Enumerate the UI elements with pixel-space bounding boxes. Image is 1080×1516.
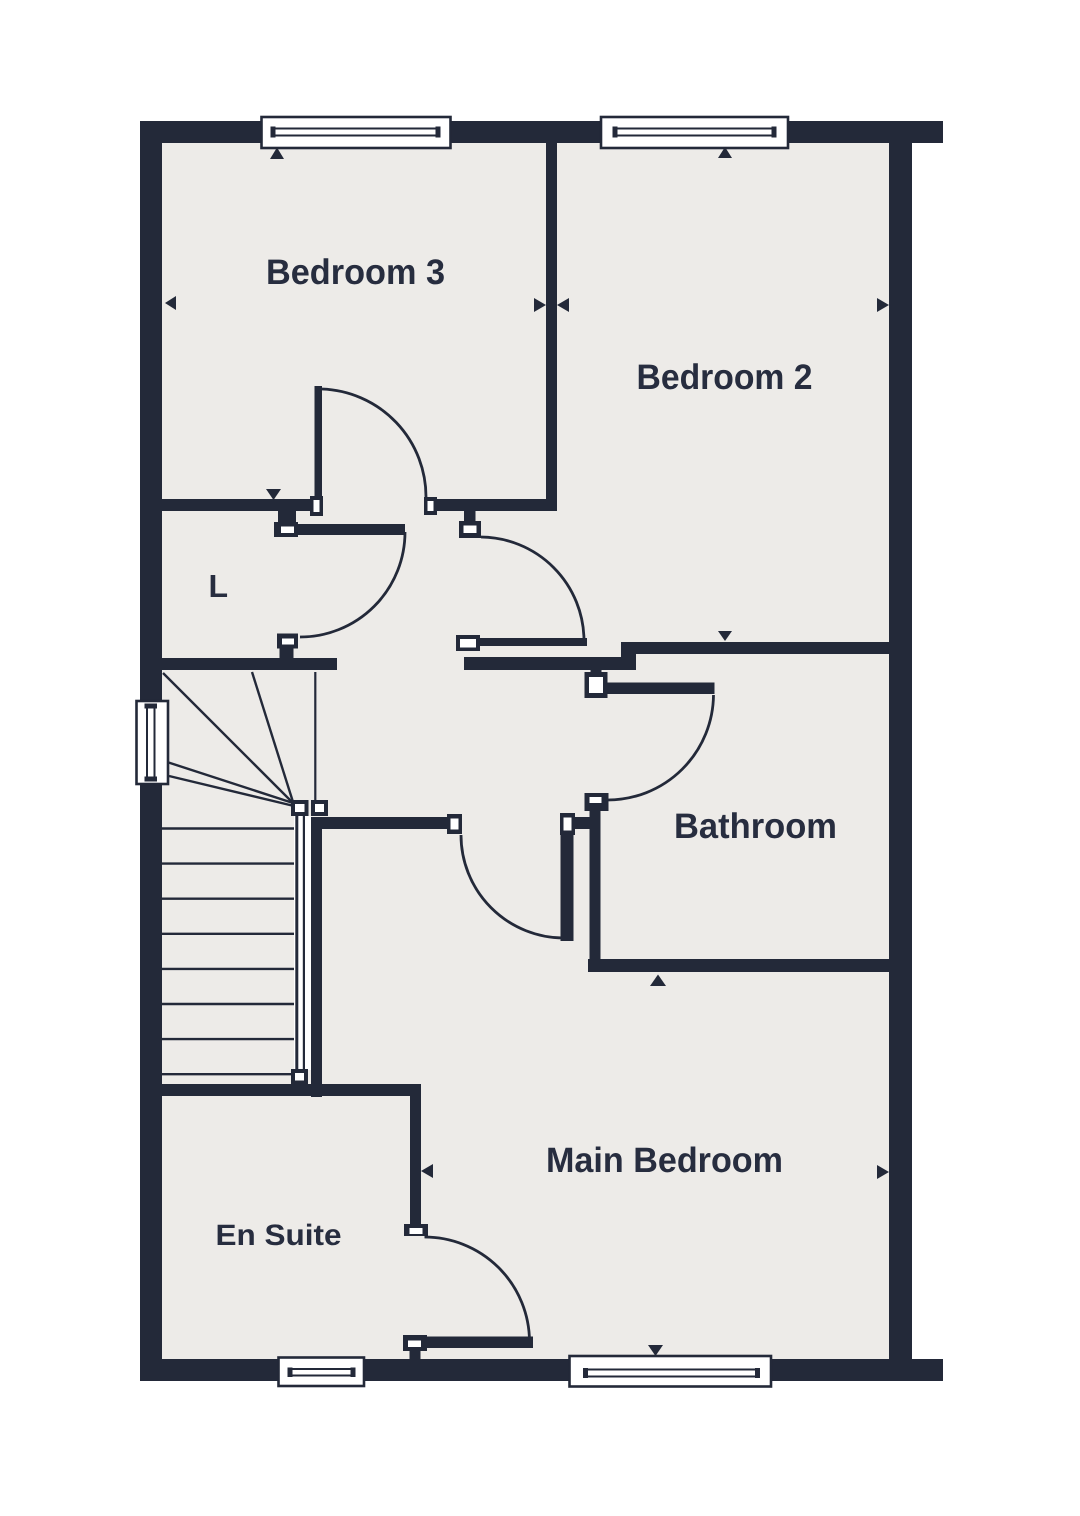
svg-text:Bathroom: Bathroom	[674, 806, 837, 846]
svg-text:Main Bedroom: Main Bedroom	[546, 1141, 783, 1180]
svg-text:Bedroom 3: Bedroom 3	[266, 252, 445, 292]
svg-text:L: L	[209, 568, 229, 604]
svg-text:Bedroom 2: Bedroom 2	[637, 357, 813, 397]
svg-text:En Suite: En Suite	[216, 1219, 342, 1252]
